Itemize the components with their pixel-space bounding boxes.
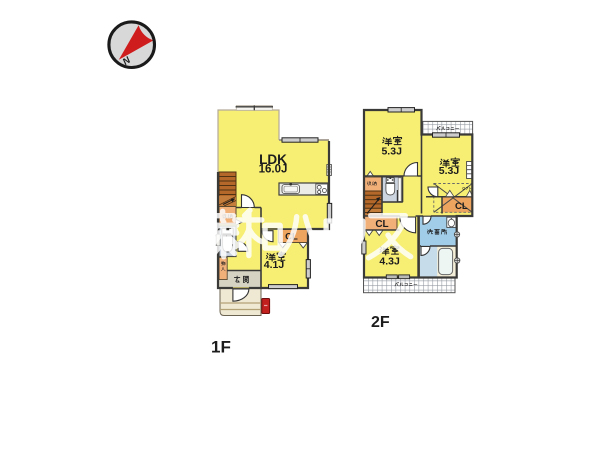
svg-text:5.3J: 5.3J — [439, 165, 460, 177]
svg-text:2F: 2F — [371, 314, 390, 331]
svg-text:5.3J: 5.3J — [381, 145, 402, 157]
svg-text:1F: 1F — [211, 338, 231, 357]
svg-text:16.0J: 16.0J — [259, 164, 288, 176]
svg-text:CL: CL — [375, 219, 388, 230]
svg-text:4.1J: 4.1J — [264, 259, 285, 271]
svg-text:4.3J: 4.3J — [379, 256, 400, 268]
svg-text:CL: CL — [455, 201, 468, 212]
